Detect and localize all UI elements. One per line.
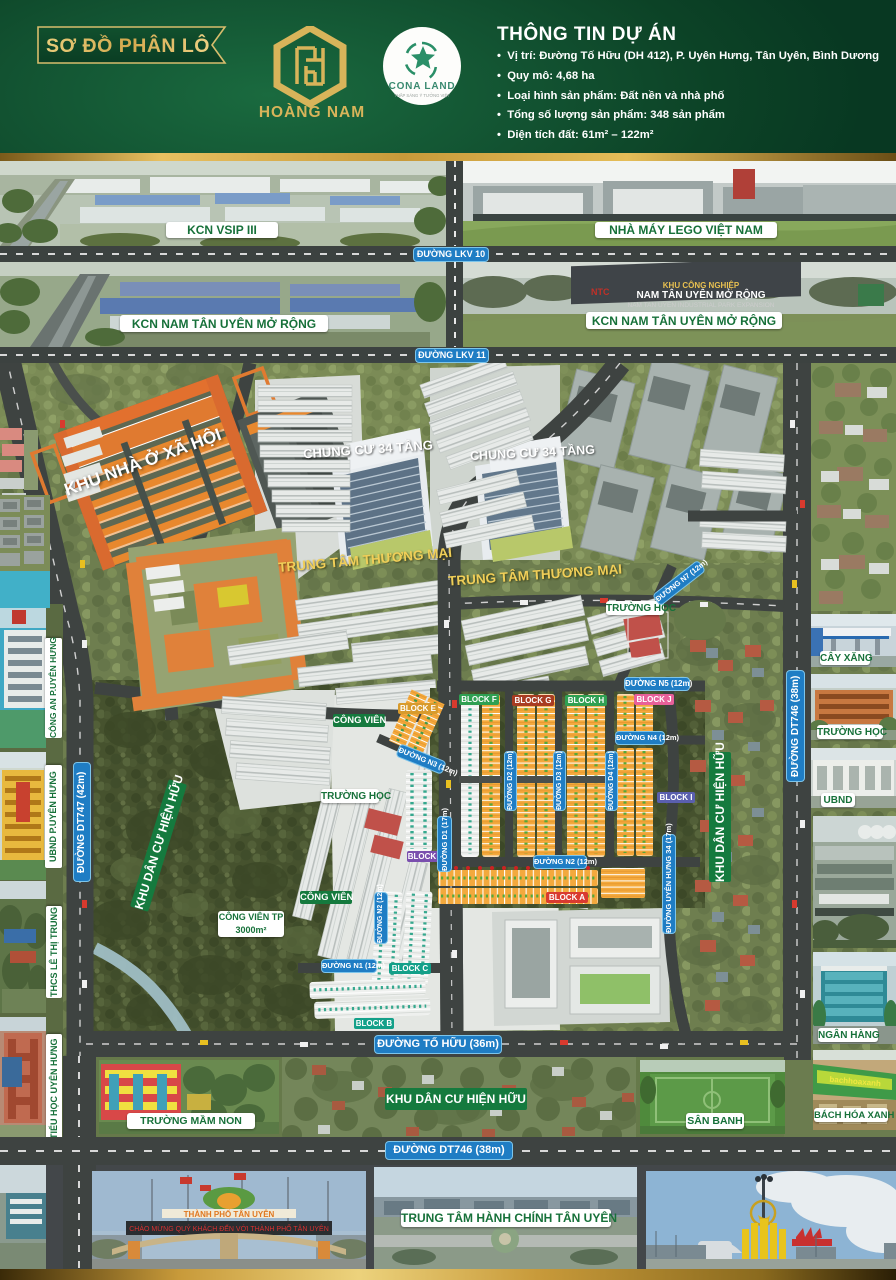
svg-text:KHU CÔNG NGHIỆP: KHU CÔNG NGHIỆP: [663, 281, 740, 290]
svg-text:SƠ ĐỒ PHÂN LÔ: SƠ ĐỒ PHÂN LÔ: [46, 33, 210, 57]
svg-text:NAM TAN UYEN INDUSTRIAL PARK E: NAM TAN UYEN INDUSTRIAL PARK EXPANSION: [628, 302, 775, 309]
svg-text:NAM TÂN UYÊN MỞ RỘNG: NAM TÂN UYÊN MỞ RỘNG: [636, 288, 765, 301]
svg-text:THẮP SÁNG Ý TƯỞNG VIỆT: THẮP SÁNG Ý TƯỞNG VIỆT: [394, 93, 450, 98]
svg-text:CONA LAND: CONA LAND: [389, 81, 456, 92]
svg-text:NTC: NTC: [591, 287, 610, 297]
svg-text:THÀNH PHỐ TÂN UYÊN: THÀNH PHỐ TÂN UYÊN: [184, 1209, 275, 1219]
